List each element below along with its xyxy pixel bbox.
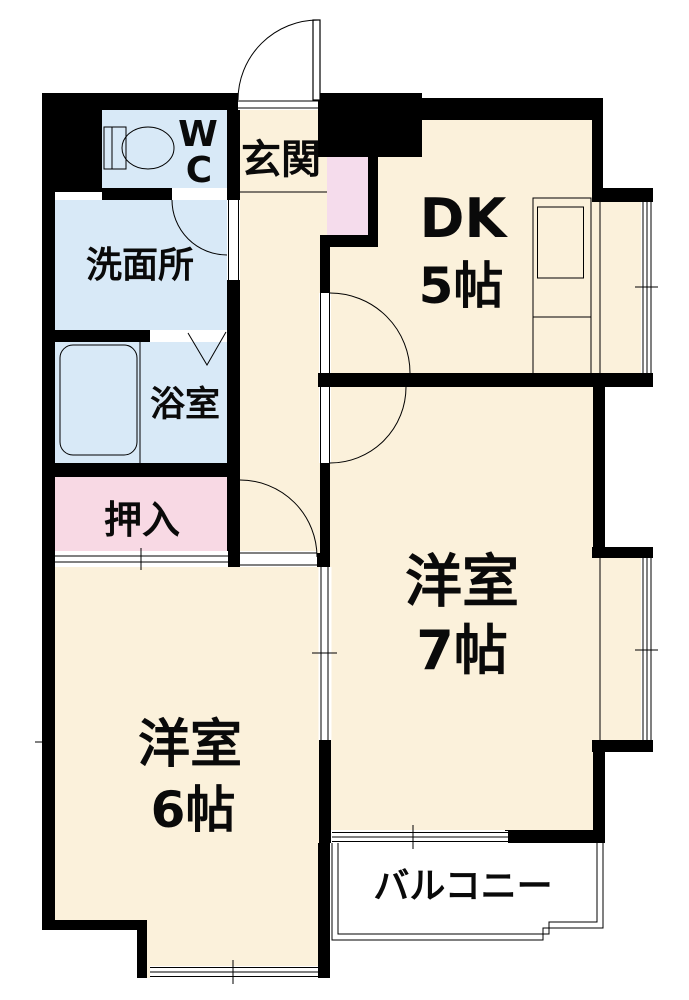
closet-label: 押入 — [104, 498, 180, 542]
wc-label-line1: W — [178, 114, 218, 155]
balcony-label: バルコニー — [373, 866, 552, 907]
western-room-6-size-label: 6帖 — [151, 781, 236, 839]
wall-segment — [318, 965, 330, 978]
wall-segment — [318, 843, 330, 978]
western-room-6-name-label: 洋室 — [138, 715, 242, 775]
wall-segment — [320, 235, 378, 247]
wc-label-line2: C — [186, 150, 212, 191]
wall-segment — [137, 930, 147, 978]
wall-segment — [55, 330, 150, 342]
bathroom-door-opening — [150, 330, 227, 342]
wall-segment — [228, 553, 240, 567]
bathroom-label: 浴室 — [150, 384, 220, 425]
wall-segment — [592, 188, 653, 202]
western-room-7-name-label: 洋室 — [405, 549, 519, 615]
wall-segment — [102, 188, 172, 200]
wall-segment — [592, 110, 603, 190]
wall-segment — [42, 93, 55, 930]
wall-segment — [318, 93, 422, 157]
wall-segment — [592, 740, 653, 752]
wall-segment — [317, 553, 330, 567]
wall-segment — [227, 280, 240, 557]
dk-size-label: 5帖 — [419, 257, 504, 315]
wall-segment — [42, 93, 238, 110]
entrance-label: 玄関 — [241, 137, 321, 183]
wall-segment — [320, 463, 330, 553]
washroom-door — [227, 200, 240, 280]
wall-segment — [42, 920, 147, 930]
wall-segment — [593, 387, 605, 547]
wall-segment — [319, 740, 331, 843]
wall-segment — [422, 98, 603, 120]
entrance-door-leaf — [313, 20, 320, 100]
wall-segment — [55, 463, 227, 477]
pipe-space — [55, 110, 102, 192]
entry-cabinet — [327, 157, 368, 235]
wall-segment — [592, 547, 653, 558]
washroom-label: 洗面所 — [86, 245, 194, 286]
wall-segment — [505, 830, 605, 843]
wall-segment — [318, 373, 653, 387]
western-room-7-size-label: 7帖 — [416, 619, 508, 682]
closet-sliding-door — [55, 548, 228, 570]
floor-plan: W C 玄関 DK 5帖 洗面所 浴室 押入 洋室 7帖 洋室 6帖 バルコニー — [0, 0, 689, 1000]
dk-name-label: DK — [420, 187, 509, 250]
wall-segment — [593, 752, 605, 830]
wall-segment — [368, 157, 378, 247]
wall-segment — [320, 247, 330, 293]
